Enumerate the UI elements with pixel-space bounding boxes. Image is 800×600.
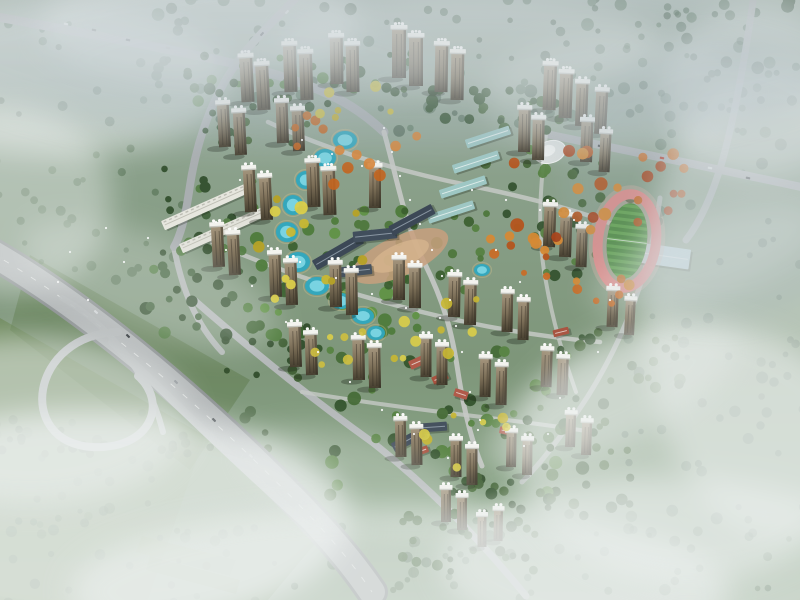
rendering-canvas bbox=[0, 0, 800, 600]
street-lamp bbox=[419, 223, 421, 225]
street-lamp bbox=[371, 293, 373, 295]
street-lamp bbox=[505, 199, 507, 201]
street-lamp bbox=[349, 381, 351, 383]
street-lamp bbox=[431, 249, 433, 251]
street-lamp bbox=[449, 299, 451, 301]
street-lamp bbox=[285, 321, 287, 323]
street-lamp bbox=[439, 317, 441, 319]
street-lamp bbox=[471, 189, 473, 191]
street-lamp bbox=[477, 429, 479, 431]
street-lamp bbox=[267, 245, 269, 247]
street-lamp bbox=[479, 419, 481, 421]
street-lamp bbox=[413, 433, 415, 435]
aerial-masterplan-rendering bbox=[0, 0, 800, 600]
street-lamp bbox=[239, 179, 241, 181]
street-lamp bbox=[405, 307, 407, 309]
street-lamp bbox=[495, 249, 497, 251]
street-lamp bbox=[299, 261, 301, 263]
street-lamp bbox=[469, 391, 471, 393]
street-lamp bbox=[519, 281, 521, 283]
street-lamp bbox=[461, 351, 463, 353]
atmosphere-veil bbox=[0, 0, 800, 170]
street-lamp bbox=[381, 409, 383, 411]
street-lamp bbox=[441, 275, 443, 277]
street-lamp bbox=[335, 277, 337, 279]
street-lamp bbox=[409, 199, 411, 201]
street-lamp bbox=[399, 175, 401, 177]
street-lamp bbox=[539, 209, 541, 211]
street-lamp bbox=[317, 351, 319, 353]
street-lamp bbox=[447, 457, 449, 459]
street-lamp bbox=[225, 249, 227, 251]
street-lamp bbox=[215, 221, 217, 223]
street-lamp bbox=[455, 325, 457, 327]
